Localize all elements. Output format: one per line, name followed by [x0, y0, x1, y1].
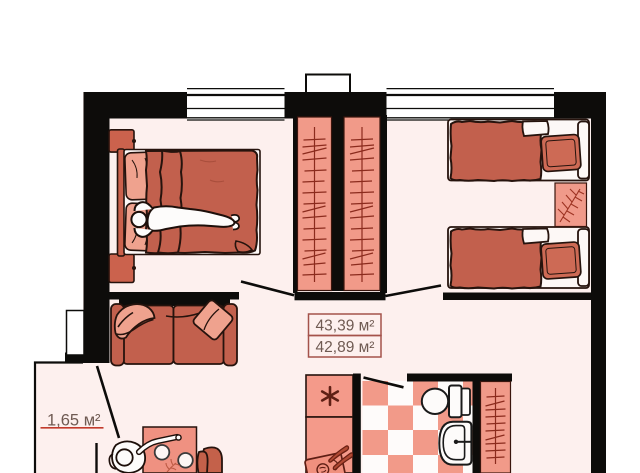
svg-text:43,39 м²: 43,39 м² [316, 318, 375, 335]
svg-text:1,65 м²: 1,65 м² [47, 412, 101, 430]
svg-text:42,89 м²: 42,89 м² [316, 339, 375, 356]
